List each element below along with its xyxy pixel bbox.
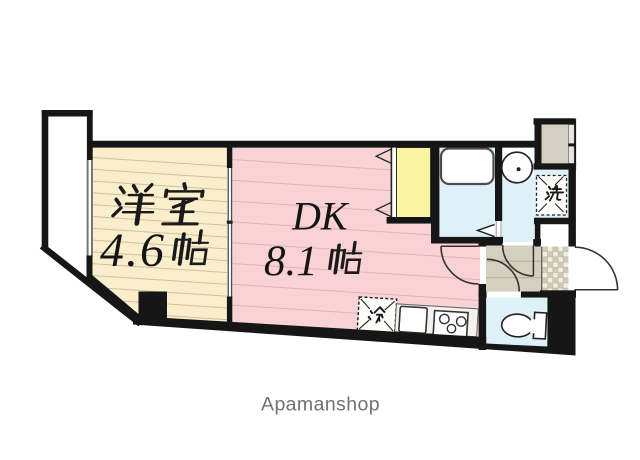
svg-text:DK: DK: [291, 194, 350, 239]
svg-text:4.6: 4.6: [100, 224, 166, 277]
svg-text:Apamanshop: Apamanshop: [261, 394, 380, 416]
svg-text:8.1: 8.1: [264, 238, 318, 285]
